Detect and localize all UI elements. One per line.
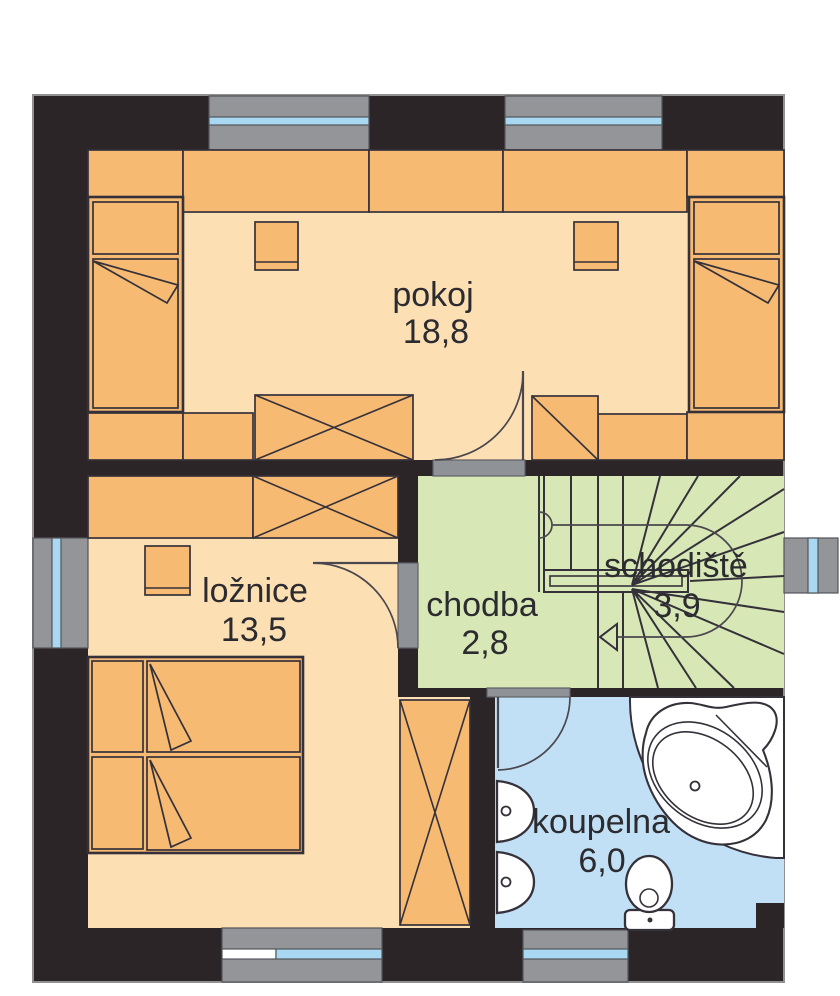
floor-plan: pokoj 18,8 ložnice 13,5 chodba 2,8 schod… bbox=[0, 0, 840, 996]
room-label-schodiste: schodiště bbox=[604, 547, 748, 585]
cabinet-pokoj bbox=[532, 396, 598, 460]
room-label-chodba: chodba bbox=[426, 586, 538, 624]
room-area-koupelna: 6,0 bbox=[578, 842, 625, 880]
wardrobe-loznice-tall bbox=[400, 700, 470, 925]
loznice-kneewall-strip bbox=[88, 476, 253, 538]
plan-canvas: pokoj 18,8 ložnice 13,5 chodba 2,8 schod… bbox=[0, 0, 840, 996]
nightstand-pokoj-right bbox=[574, 222, 618, 270]
nightstand-loznice bbox=[145, 546, 190, 595]
koupelna-corner-notch bbox=[756, 903, 784, 928]
toilet bbox=[625, 856, 674, 930]
window-top-right bbox=[505, 96, 662, 150]
window-bottom-loznice bbox=[222, 928, 382, 982]
room-area-pokoj: 18,8 bbox=[403, 313, 469, 351]
room-label-pokoj: pokoj bbox=[392, 276, 473, 314]
room-label-koupelna: koupelna bbox=[532, 803, 670, 841]
wardrobe-pokoj bbox=[255, 395, 413, 460]
window-bottom-koupelna bbox=[523, 930, 628, 982]
nightstand-pokoj-left bbox=[255, 222, 298, 270]
bed-single-right bbox=[689, 197, 784, 412]
room-area-loznice: 13,5 bbox=[221, 611, 287, 649]
window-top-left bbox=[209, 96, 369, 150]
room-area-schodiste: 3,9 bbox=[653, 587, 700, 625]
bed-double bbox=[88, 657, 303, 853]
window-right bbox=[784, 538, 838, 593]
window-left bbox=[33, 538, 88, 648]
bed-single-left bbox=[88, 197, 183, 412]
room-label-loznice: ložnice bbox=[202, 572, 308, 610]
room-area-chodba: 2,8 bbox=[461, 624, 508, 662]
wardrobe-loznice-top bbox=[253, 476, 398, 538]
